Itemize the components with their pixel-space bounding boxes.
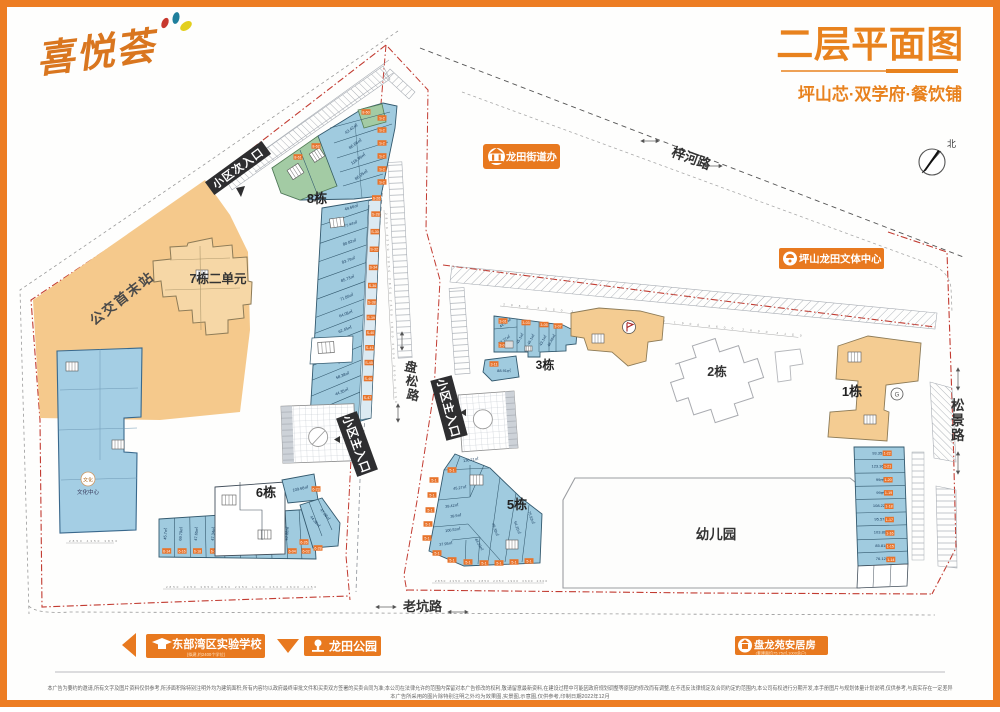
svg-text:99㎡: 99㎡ [876,489,884,495]
svg-text:1-22: 1-22 [884,452,891,456]
svg-text:5-1: 5-1 [434,551,439,555]
svg-text:5-1: 5-1 [449,558,454,562]
svg-text:1-20: 1-20 [884,478,891,482]
svg-text:S-28: S-28 [372,212,380,216]
svg-text:3-05: 3-05 [540,323,547,327]
svg-text:6-16: 6-16 [178,549,185,553]
svg-text:龙田街道办: 龙田街道办 [505,151,558,164]
svg-text:5-1: 5-1 [425,522,430,526]
svg-text:S-41: S-41 [366,346,374,350]
svg-text:S-45: S-45 [365,361,373,365]
svg-text:文化中心: 文化中心 [77,488,100,496]
svg-text:8-62: 8-62 [312,144,319,148]
svg-text:88.91㎡: 88.91㎡ [497,368,511,373]
svg-text:路: 路 [951,427,965,443]
svg-text:文化: 文化 [83,477,93,484]
svg-text:3-03: 3-03 [522,321,529,325]
svg-text:S-2: S-2 [379,116,385,120]
svg-text:S-46: S-46 [365,377,373,381]
svg-text:北: 北 [947,139,956,149]
svg-text:S-2: S-2 [379,141,385,145]
svg-text:7栋二单元: 7栋二单元 [190,271,247,286]
svg-text:1-18: 1-18 [885,505,892,509]
svg-text:(套建面约75.75㎡,1000余户): (套建面约75.75㎡,1000余户) [756,650,807,656]
svg-text:5栋: 5栋 [507,497,527,512]
svg-text:45.7㎡: 45.7㎡ [162,528,168,540]
svg-text:S-2: S-2 [379,167,385,171]
svg-text:5-1: 5-1 [496,561,501,565]
svg-text:S-36: S-36 [369,284,377,288]
svg-text:S-40: S-40 [367,331,375,335]
svg-text:5-1: 5-1 [449,468,454,472]
svg-text:8-61: 8-61 [294,155,301,159]
svg-text:景: 景 [951,413,965,428]
svg-text:G: G [895,393,900,399]
svg-text:3-07: 3-07 [554,324,561,328]
svg-text:5-1: 5-1 [431,478,436,482]
svg-text:S-38: S-38 [368,300,376,304]
svg-text:2栋: 2栋 [707,364,727,379]
svg-text:东部湾区实验学校: 东部湾区实验学校 [172,637,262,651]
svg-text:6-23: 6-23 [312,487,319,491]
svg-text:6-04: 6-04 [289,549,296,553]
svg-text:5-1: 5-1 [511,560,516,564]
svg-text:5-1: 5-1 [427,508,432,512]
svg-text:1栋: 1栋 [842,384,862,399]
svg-text:1-21: 1-21 [884,465,891,469]
svg-text:1-14: 1-14 [887,558,894,562]
svg-text:S-32: S-32 [370,248,378,252]
svg-text:S-47: S-47 [364,396,372,400]
svg-text:本广告所采用的图片除特别注明之外均为效果图,实景图,示意图,: 本广告所采用的图片除特别注明之外均为效果图,实景图,示意图,仅供参考,印制日期2… [390,692,610,700]
svg-text:幼儿园: 幼儿园 [696,526,737,542]
svg-text:3-01: 3-01 [499,319,506,323]
svg-text:(拟建,约2400个学位): (拟建,约2400个学位) [187,651,226,658]
svg-text:6-02: 6-02 [302,549,309,553]
svg-text:S-34: S-34 [370,266,378,270]
svg-text:本广告为要约的邀请,所有文字及图片资料仅供参考,所涉面积除特: 本广告为要约的邀请,所有文字及图片资料仅供参考,所涉面积除特别注明外均为建筑面积… [48,684,953,692]
svg-text:松: 松 [951,397,965,413]
svg-text:S-2: S-2 [379,128,385,132]
svg-text:S-39: S-39 [367,316,375,320]
svg-text:1-19: 1-19 [885,491,892,495]
svg-text:1-16: 1-16 [886,531,893,535]
svg-text:S-30: S-30 [371,230,379,234]
svg-text:6-14: 6-14 [163,549,170,553]
svg-text:5-1: 5-1 [465,560,470,564]
svg-text:龙田公园: 龙田公园 [329,639,377,654]
svg-text:8栋: 8栋 [307,191,327,206]
svg-text:5-1: 5-1 [481,561,486,565]
svg-text:5-1: 5-1 [526,559,531,563]
svg-text:二层平面图: 二层平面图 [776,24,964,65]
svg-text:3栋: 3栋 [536,357,555,372]
svg-text:8-60: 8-60 [362,110,369,114]
svg-text:6-28: 6-28 [314,546,321,550]
svg-text:老坑路: 老坑路 [402,599,443,614]
svg-text:3-11: 3-11 [491,362,498,366]
svg-text:99㎡: 99㎡ [876,476,884,482]
svg-text:5-1: 5-1 [424,536,429,540]
svg-text:S-2: S-2 [379,180,385,184]
svg-text:坪山芯·双学府·餐饮铺: 坪山芯·双学府·餐饮铺 [798,84,962,104]
svg-text:坪山龙田文体中心: 坪山龙田文体中心 [799,253,882,266]
svg-text:S-26: S-26 [373,196,381,200]
svg-text:1-17: 1-17 [886,518,893,522]
svg-text:S-2: S-2 [379,154,385,158]
svg-text:6栋: 6栋 [256,485,276,500]
svg-text:6-18: 6-18 [194,549,201,553]
svg-text:1-15: 1-15 [887,545,894,549]
svg-text:6-26: 6-26 [300,540,307,544]
svg-text:5-1: 5-1 [429,493,434,497]
